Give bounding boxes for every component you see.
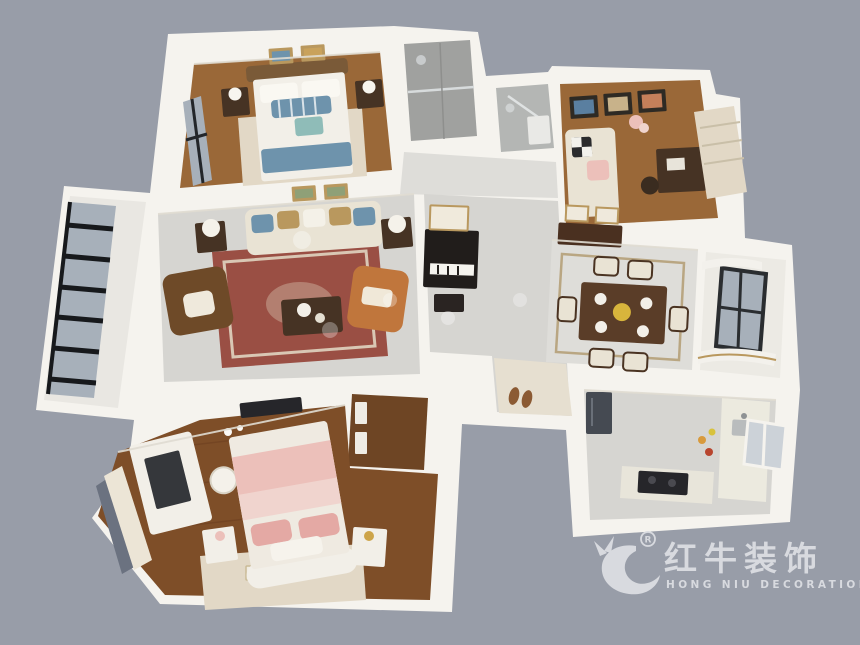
master-bedroom xyxy=(180,44,392,188)
cooktop-burner xyxy=(668,479,676,487)
living-art-1 xyxy=(295,188,314,198)
sofa-pillow-gold-1 xyxy=(277,210,300,229)
piano-bench xyxy=(434,294,464,312)
dining-chair xyxy=(594,257,619,276)
sofa-pillow-gold-2 xyxy=(329,206,352,225)
fruit xyxy=(705,448,713,456)
checker-pillow-detail xyxy=(571,137,582,148)
study-art-1 xyxy=(574,99,595,114)
shower-bathroom xyxy=(404,40,477,141)
piano xyxy=(423,229,479,289)
cabinet-lamp xyxy=(364,531,374,541)
sideboard-art-frame-1 xyxy=(566,205,589,221)
master-art-1 xyxy=(272,50,291,61)
ceiling-light-glow xyxy=(293,231,311,249)
walk-in-closet xyxy=(348,394,428,470)
ceiling-light-glow xyxy=(322,322,338,338)
entry-floor xyxy=(494,358,572,416)
side-lamp-left xyxy=(202,219,220,237)
entry-nook xyxy=(494,358,572,416)
washing-machine xyxy=(527,115,551,144)
master-throw-teal xyxy=(294,116,323,136)
ceiling-light-glow xyxy=(441,311,455,325)
study-art-2 xyxy=(608,96,629,111)
kitchen xyxy=(584,390,786,520)
kitchen-window-mullion xyxy=(763,423,765,467)
sofa-pillow-blue-1 xyxy=(251,214,274,233)
side-lamp-right xyxy=(388,215,406,233)
living-room xyxy=(158,183,420,382)
faucet-icon xyxy=(741,413,747,419)
floorplan-canvas: R 红牛装饰 HONG NIU DECORATION xyxy=(0,0,860,645)
master-lamp-left xyxy=(229,88,242,101)
registered-mark: R xyxy=(645,536,652,546)
piano-keys xyxy=(430,263,474,276)
ceiling-vent-icon xyxy=(506,104,515,113)
brand-name-english: HONG NIU DECORATION xyxy=(666,579,860,591)
ceiling-light-glow xyxy=(383,293,397,307)
study-pink-pillow xyxy=(586,160,609,181)
living-art-2 xyxy=(327,186,346,196)
living-sofa-group xyxy=(244,200,383,255)
nightstand-flowers xyxy=(215,531,225,541)
cooktop xyxy=(637,471,688,496)
ceiling-light-glow xyxy=(513,293,527,307)
dining-chair xyxy=(669,307,688,332)
closet-shelf-items xyxy=(355,402,367,424)
sideboard-art-frame-2 xyxy=(596,207,619,223)
fruit xyxy=(698,436,706,444)
coffee-table-flowers xyxy=(297,303,311,317)
checker-pillow-detail xyxy=(582,147,593,158)
guest-bathroom xyxy=(496,84,554,152)
study-art-3 xyxy=(642,93,663,108)
sofa-pillow-blue-2 xyxy=(353,207,376,226)
study-flowers xyxy=(639,123,649,133)
master-lamp-right xyxy=(363,81,376,94)
dining-chair xyxy=(623,352,648,371)
dining-chair xyxy=(628,260,653,279)
cooktop-burner xyxy=(648,476,656,484)
dining-chair xyxy=(589,348,614,367)
sofa-pillow-cream xyxy=(303,208,326,227)
closet-shelf-items xyxy=(355,432,367,454)
desk-papers xyxy=(666,158,685,171)
floorplan-render: R 红牛装饰 HONG NIU DECORATION xyxy=(0,0,860,645)
refrigerator xyxy=(586,392,612,434)
fruit xyxy=(709,429,716,436)
dining-chair xyxy=(557,297,576,322)
coffee-table-tray xyxy=(315,313,325,323)
piano-art-frame xyxy=(430,205,469,230)
bay-window-room xyxy=(698,252,786,378)
shower-head-icon xyxy=(416,55,426,65)
brand-name-chinese: 红牛装饰 xyxy=(664,539,824,578)
master-bed-group xyxy=(246,58,358,182)
